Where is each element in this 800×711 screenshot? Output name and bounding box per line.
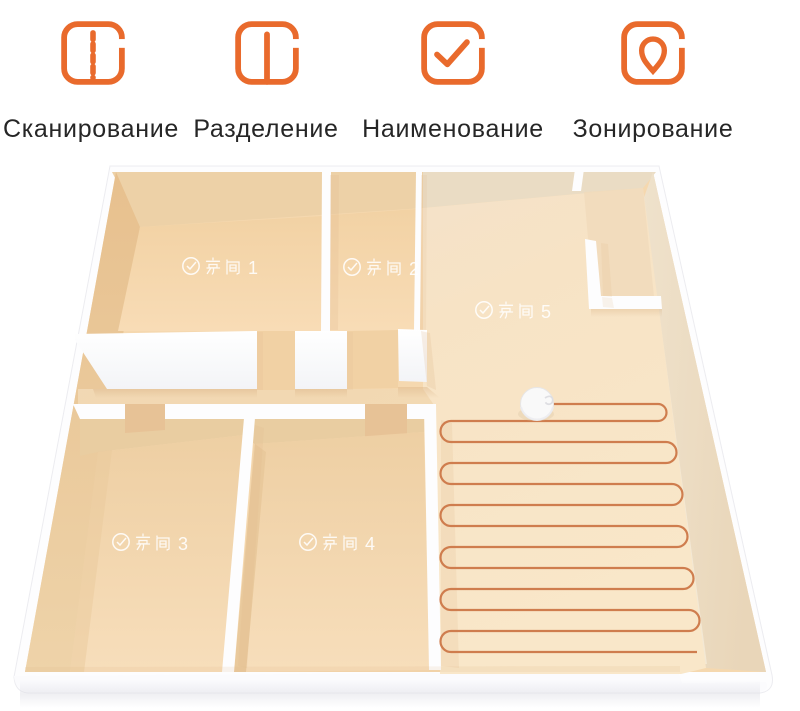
svg-text:3: 3	[178, 534, 188, 554]
svg-text:4: 4	[365, 534, 375, 554]
svg-text:5: 5	[541, 302, 551, 322]
svg-text:2: 2	[409, 259, 419, 279]
svg-text:1: 1	[248, 258, 258, 278]
